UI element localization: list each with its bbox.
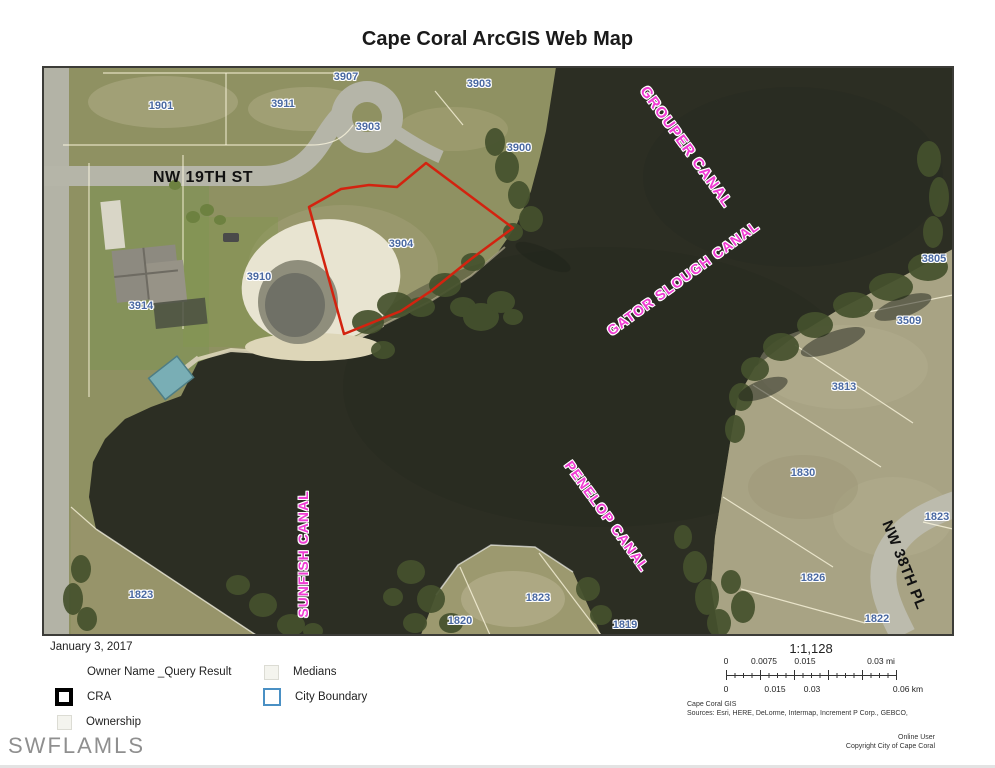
scale-mi-label: 0.015	[794, 656, 815, 666]
scale-miles-labels: 00.00750.0150.03 mi	[726, 656, 896, 666]
scale-km-label: 0.03	[804, 684, 821, 694]
online-user: Online User	[846, 733, 935, 742]
copyright-block: Online User Copyright City of Cape Coral	[846, 733, 935, 752]
sources-credit: Sources: Esri, HERE, DeLorme, Intermap, …	[687, 709, 908, 718]
legend-item: Medians	[264, 662, 336, 682]
legend-swatch	[57, 715, 72, 730]
legend-label: CRA	[87, 691, 111, 703]
legend-item: Ownership	[57, 712, 141, 732]
map-canvas[interactable]: 1901391139073903390339003910391439043805…	[42, 66, 954, 636]
map-credits: Cape Coral GIS Sources: Esri, HERE, DeLo…	[687, 700, 908, 718]
page-title: Cape Coral ArcGIS Web Map	[0, 28, 995, 51]
legend-swatch	[263, 688, 281, 706]
scale-km-label: 0	[724, 684, 729, 694]
legend-label: Ownership	[86, 716, 141, 728]
legend-item: City Boundary	[263, 687, 367, 707]
scale-km-label: 0.015	[764, 684, 785, 694]
scale-km-labels: 00.0150.030.06 km	[726, 684, 896, 694]
aerial-map-graphic	[43, 67, 953, 635]
scale-mi-label: 0.0075	[751, 656, 777, 666]
page: Cape Coral ArcGIS Web Map	[0, 0, 995, 768]
scale-km-label: 0.06 km	[893, 684, 923, 694]
scale-mi-label: 0.03 mi	[867, 656, 895, 666]
left-road	[43, 67, 69, 635]
legend-label: City Boundary	[295, 691, 367, 703]
swflamls-watermark: SWFLAMLS	[8, 733, 145, 759]
scale-bar	[726, 670, 896, 680]
legend-swatch	[55, 688, 73, 706]
legend-item: CRA	[55, 687, 111, 707]
scale-mi-label: 0	[724, 656, 729, 666]
gis-credit: Cape Coral GIS	[687, 700, 908, 709]
legend-swatch	[264, 665, 279, 680]
legend-label: Owner Name _Query Result	[87, 666, 231, 678]
scale-ratio: 1:1,128	[789, 641, 832, 656]
car	[223, 233, 239, 242]
copyright: Copyright City of Cape Coral	[846, 742, 935, 751]
map-date: January 3, 2017	[50, 641, 132, 653]
legend-item: Owner Name _Query Result	[55, 662, 231, 682]
legend-label: Medians	[293, 666, 336, 678]
